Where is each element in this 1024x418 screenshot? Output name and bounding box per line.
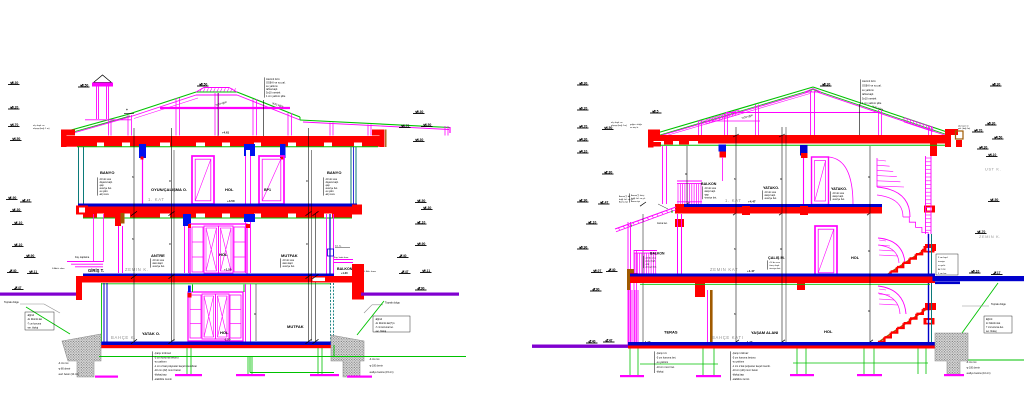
svg-text:3 cm kapl.: 3 cm kapl. xyxy=(938,257,948,259)
svg-text:-1 cm 2 kat polyester keçeli m: -1 cm 2 kat polyester keçeli memb. xyxy=(732,365,771,368)
svg-text:R: R xyxy=(868,309,870,313)
svg-text:-karşı kapl.: -karşı kapl. xyxy=(645,260,656,263)
svg-text:YAŞAM ALANI: YAŞAM ALANI xyxy=(751,330,778,335)
svg-text:UST K.: UST K. xyxy=(985,168,1001,172)
svg-text:bağl. bil. ve yıl.: bağl. bil. ve yıl. xyxy=(619,198,634,201)
svg-text:OSB-II ve su yal.: OSB-II ve su yal. xyxy=(862,83,882,87)
svg-text:-tesviye bet.: -tesviye bet. xyxy=(645,266,657,269)
svg-text:5x10 mertek: 5x10 mertek xyxy=(862,97,877,101)
svg-text:-5 cm koruma betonu: -5 cm koruma betonu xyxy=(154,355,179,359)
svg-text:BALKON: BALKON xyxy=(701,182,717,186)
svg-text:Fay. kade kam.: Fay. kade kam. xyxy=(334,257,349,259)
svg-text:-tesviye bet.: -tesviye bet. xyxy=(704,197,717,200)
svg-text:alçı kapl. ve: alçı kapl. ve xyxy=(33,125,45,127)
svg-text:-1 cm 2 kat polyester keçeli m: -1 cm 2 kat polyester keçeli membran xyxy=(154,364,198,368)
svg-text:ve iniş b.: ve iniş b. xyxy=(630,127,639,129)
svg-text:5x10 mertek: 5x10 mertek xyxy=(266,91,281,95)
svg-text:1. KAT: 1. KAT xyxy=(725,198,742,203)
svg-text:MUTFAK: MUTFAK xyxy=(281,253,298,258)
svg-text:R: R xyxy=(254,312,256,316)
svg-text:-Eğimli: -Eğimli xyxy=(27,314,35,317)
svg-text:ZEMIN K.: ZEMIN K. xyxy=(979,235,1001,239)
svg-text:YATAKO.: YATAKO. xyxy=(831,187,847,191)
svg-text:R: R xyxy=(306,179,308,183)
svg-text:5 cm kor.: 5 cm kor. xyxy=(938,272,947,275)
svg-text:kot. fa.: kot. fa. xyxy=(335,245,342,248)
svg-text:Toprak dolgu: Toprak dolgu xyxy=(4,300,19,304)
svg-text:-blokaj: -blokaj xyxy=(656,370,664,373)
svg-text:tahta kapl.: tahta kapl. xyxy=(862,92,874,96)
svg-text:GİRİŞ T.: GİRİŞ T. xyxy=(88,268,104,273)
svg-text:Asma ker.: Asma ker. xyxy=(657,222,668,225)
svg-text:MUTFAK: MUTFAK xyxy=(287,324,304,329)
svg-text:-10 cm mıcır bet.: -10 cm mıcır bet. xyxy=(656,366,675,369)
svg-text:+1.30: +1.30 xyxy=(341,271,348,275)
svg-text:R: R xyxy=(780,247,782,251)
svg-text:-φ 100 demir: -φ 100 demir xyxy=(369,365,383,368)
svg-text:ahşap (bağ: 1 m): ahşap (bağ: 1 m) xyxy=(33,127,50,130)
svg-text:ZEMIN K.: ZEMIN K. xyxy=(125,267,149,272)
svg-text:HOL: HOL xyxy=(219,252,228,257)
svg-text:tesviye: tesviye xyxy=(938,260,946,263)
svg-text:R: R xyxy=(169,179,171,183)
svg-text:Asma tipi: Asma tipi xyxy=(619,201,629,204)
svg-text:HOL: HOL xyxy=(225,187,234,192)
svg-text:HOL: HOL xyxy=(851,256,860,260)
svg-text:-Cil do sıva: -Cil do sıva xyxy=(769,262,781,264)
svg-text:YATAK O.: YATAK O. xyxy=(142,331,160,336)
svg-text:-7 cm koruma bet.: -7 cm koruma bet. xyxy=(375,326,394,329)
svg-text:su yalıtımı: su yalıtımı xyxy=(862,88,874,92)
svg-text:Eğimli: Eğimli xyxy=(986,318,993,321)
svg-text:ahşap (bağ: 1m): ahşap (bağ: 1m) xyxy=(611,124,627,127)
svg-text:-φ 100 demir: -φ 100 demir xyxy=(966,367,980,370)
svg-text:2x bitümlü kat: 2x bitümlü kat xyxy=(986,322,1001,325)
svg-text:-5 cm koruma bet.: -5 cm koruma bet. xyxy=(656,357,676,360)
svg-text:BP1: BP1 xyxy=(264,188,271,192)
svg-text:-tesf. beton (10 cm): -tesf. beton (10 cm) xyxy=(58,373,79,376)
svg-text:-φ 80 demir: -φ 80 demir xyxy=(58,368,71,371)
svg-text:BANYO: BANYO xyxy=(327,170,341,175)
svg-text:-blokaj taşı: -blokaj taşı xyxy=(732,374,744,377)
svg-text:YATAKO.: YATAKO. xyxy=(763,186,779,190)
svg-text:+: + xyxy=(126,108,128,112)
svg-text:-tesviye bet.: -tesviye bet. xyxy=(152,265,165,268)
svg-text:su yalıtımı: su yalıtımı xyxy=(266,84,278,88)
svg-text:tahta kapl.: tahta kapl. xyxy=(266,87,278,91)
svg-text:-karşı kapl.: -karşı kapl. xyxy=(769,264,780,267)
svg-text:-7 cm koruma: -7 cm koruma xyxy=(27,322,42,325)
svg-text:Asma(?) bil.: Asma(?) bil. xyxy=(619,195,631,198)
svg-text:Fay. kaplama: Fay. kaplama xyxy=(75,256,90,259)
svg-text:-Çarşı tırt.: -Çarşı tırt. xyxy=(656,352,667,355)
svg-text:-ser. blokaj: -ser. blokaj xyxy=(27,327,39,330)
svg-text:yağm. oluğu: yağm. oluğu xyxy=(630,123,643,126)
svg-text:+1.47: +1.47 xyxy=(747,269,755,273)
svg-text:R: R xyxy=(169,242,171,246)
svg-text:-blokaj taşı: -blokaj taşı xyxy=(154,373,167,377)
svg-text:Atermit örtü: Atermit örtü xyxy=(862,79,876,83)
svg-text:-tesviye bet.: -tesviye bet. xyxy=(764,197,777,200)
svg-text:-10 cm (d2) mıcır beton: -10 cm (d2) mıcır beton xyxy=(154,368,182,372)
svg-text:-tesfiye betonu (10 cm): -tesfiye betonu (10 cm) xyxy=(966,372,991,375)
svg-text:-3 cm mıc.: -3 cm mıc. xyxy=(369,358,380,361)
svg-text:-tesfiye betonu (15 cm): -tesfiye betonu (15 cm) xyxy=(369,371,394,374)
svg-text:+4.61: +4.61 xyxy=(222,131,230,135)
svg-text:su yalıt.: su yalıt. xyxy=(938,264,946,267)
svg-text:-3 cm mıc.: -3 cm mıc. xyxy=(58,362,69,365)
svg-text:1. KAT: 1. KAT xyxy=(148,197,165,202)
svg-text:-tesviye bet.: -tesviye bet. xyxy=(282,265,295,268)
svg-text:Toprak dolgu: Toprak dolgu xyxy=(991,302,1006,306)
svg-text:BAHÇE KATI: BAHÇE KATI xyxy=(712,335,744,340)
svg-text:7 cm koruma bet.: 7 cm koruma bet. xyxy=(986,326,1004,329)
svg-text:-tesviye bet.: -tesviye bet. xyxy=(769,267,781,270)
svg-text:HOL: HOL xyxy=(824,329,833,334)
svg-text:+1.50: +1.50 xyxy=(224,268,232,272)
svg-text:HOL: HOL xyxy=(220,330,229,335)
svg-text:-ser. blokaj: -ser. blokaj xyxy=(375,330,387,333)
svg-text:-Çarşı tırtılmaz: -Çarşı tırtılmaz xyxy=(154,351,172,355)
svg-text:-su yalıtımı: -su yalıtımı xyxy=(154,360,167,364)
svg-text:ALT ÖK: ALT ÖK xyxy=(938,268,946,271)
svg-text:yük. (bağ 1m): yük. (bağ 1m) xyxy=(958,127,971,130)
svg-text:ZEMIN KAT: ZEMIN KAT xyxy=(710,267,738,272)
svg-text:BAHÇE K.: BAHÇE K. xyxy=(111,335,136,340)
svg-text:+4.50: +4.50 xyxy=(227,199,235,203)
svg-text:-3 cm mıc.: -3 cm mıc. xyxy=(966,361,977,364)
svg-text:R: R xyxy=(868,175,870,179)
svg-text:BANYO: BANYO xyxy=(100,170,114,175)
svg-text:Asma(?) kirişi: Asma(?) kirişi xyxy=(631,194,645,197)
svg-text:-stabilize zemin: -stabilize zemin xyxy=(154,377,172,381)
svg-text:OSB-II ve su yal.: OSB-II ve su yal. xyxy=(266,80,286,84)
svg-text:-su yalıtımı: -su yalıtımı xyxy=(656,361,669,364)
svg-text:R: R xyxy=(780,177,782,181)
svg-text:-10 cm (d2) mıcır beton: -10 cm (d2) mıcır beton xyxy=(732,369,759,372)
svg-text:L.Reh. fener: L.Reh. fener xyxy=(364,270,376,273)
svg-text:ANTRE: ANTRE xyxy=(151,253,165,258)
svg-text:R: R xyxy=(868,249,870,253)
svg-text:alçı kapl. ve: alçı kapl. ve xyxy=(611,122,623,124)
svg-text:-su yalıtımı: -su yalıtımı xyxy=(732,361,745,364)
svg-text:BALKON: BALKON xyxy=(337,267,353,271)
svg-text:-1.50: -1.50 xyxy=(224,338,231,342)
svg-text:1 cm yalıtım şilte: 1 cm yalıtım şilte xyxy=(266,94,286,98)
svg-text:-alçı sıva: -alçı sıva xyxy=(99,193,109,196)
svg-text:-tesviye bet.: -tesviye bet. xyxy=(832,198,845,201)
svg-text:TERAS: TERAS xyxy=(664,330,678,335)
svg-text:-2x bitümlü kat(?) k.: -2x bitümlü kat(?) k. xyxy=(375,322,396,325)
svg-text:-Cil do sıva: -Cil do sıva xyxy=(645,258,657,260)
svg-text:ser. blokaj: ser. blokaj xyxy=(986,330,997,333)
svg-text:-stabilize zemin: -stabilize zemin xyxy=(732,378,750,381)
svg-text:-Çarşı tırtılmaz: -Çarşı tırtılmaz xyxy=(732,352,749,355)
svg-text:-alçı sıva: -alçı sıva xyxy=(325,193,335,196)
svg-text:-Eğimli: -Eğimli xyxy=(375,318,383,321)
svg-text:-5 cm koruma betonu: -5 cm koruma betonu xyxy=(732,356,756,359)
svg-text:Atermit örtü: Atermit örtü xyxy=(266,77,280,81)
svg-text:Toprak dolgu: Toprak dolgu xyxy=(385,301,400,305)
svg-text:S.Altch. dam: S.Altch. dam xyxy=(52,267,65,270)
svg-text:OYUN/ÇALIŞMA O.: OYUN/ÇALIŞMA O. xyxy=(151,187,187,192)
svg-text:R: R xyxy=(685,172,687,176)
svg-text:+4.47: +4.47 xyxy=(748,200,756,204)
svg-text:BALKON: BALKON xyxy=(650,252,665,256)
svg-text:-2x bitümlü kat: -2x bitümlü kat xyxy=(27,318,42,321)
svg-text:R: R xyxy=(306,242,308,246)
